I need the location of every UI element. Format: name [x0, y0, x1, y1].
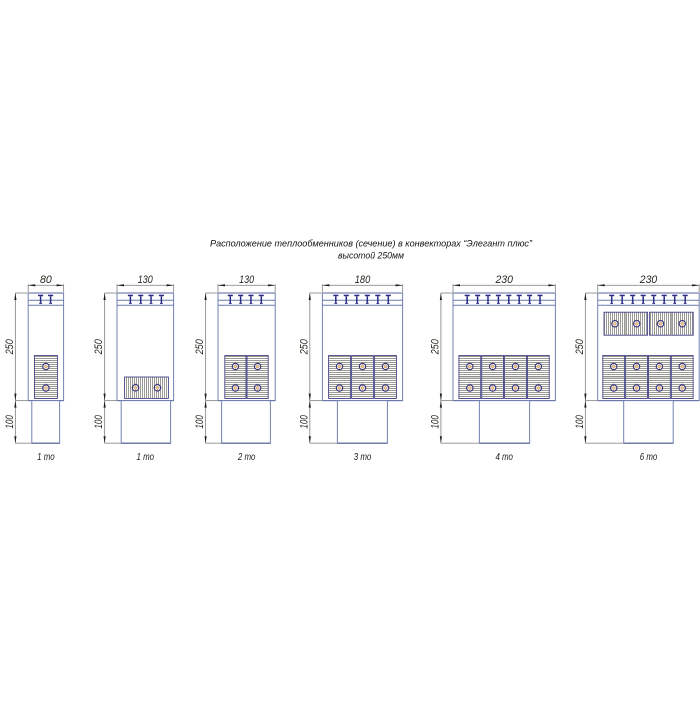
svg-text:1 то: 1 то [37, 452, 55, 463]
svg-text:100: 100 [298, 415, 310, 429]
svg-text:высотой 250мм: высотой 250мм [338, 249, 405, 260]
svg-text:250: 250 [4, 338, 16, 355]
svg-text:180: 180 [355, 274, 371, 286]
svg-text:100: 100 [194, 415, 206, 429]
svg-text:2 то: 2 то [237, 452, 256, 463]
svg-text:Расположение теплообменников (: Расположение теплообменников (сечение) в… [210, 237, 533, 248]
svg-text:4 то: 4 то [495, 452, 513, 463]
svg-text:130: 130 [138, 274, 154, 286]
svg-text:250: 250 [574, 338, 586, 355]
svg-text:100: 100 [429, 415, 441, 429]
svg-text:230: 230 [639, 274, 658, 286]
svg-text:6 то: 6 то [640, 452, 658, 463]
svg-text:100: 100 [574, 415, 586, 429]
svg-text:230: 230 [494, 274, 513, 286]
svg-text:250: 250 [298, 338, 310, 355]
svg-text:80: 80 [40, 274, 53, 286]
svg-text:250: 250 [194, 338, 206, 355]
svg-text:1 то: 1 то [137, 452, 155, 463]
svg-text:250: 250 [93, 338, 105, 355]
svg-text:250: 250 [429, 338, 441, 355]
svg-text:100: 100 [4, 415, 16, 429]
svg-text:3 то: 3 то [354, 452, 372, 463]
svg-text:100: 100 [93, 415, 105, 429]
svg-text:130: 130 [239, 274, 255, 286]
